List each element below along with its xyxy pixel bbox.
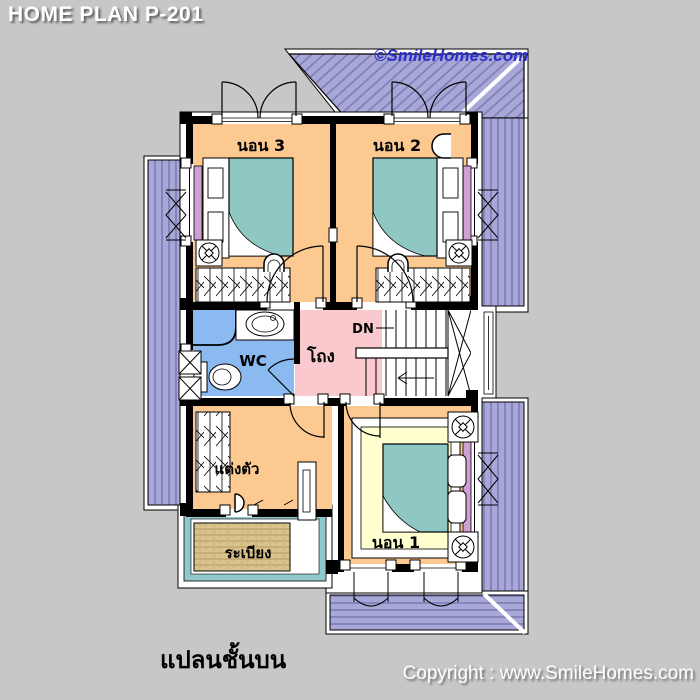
dresser: [298, 462, 316, 520]
ceiling-fan-icon: [196, 240, 222, 266]
closet: [376, 268, 470, 302]
window-sill: [463, 430, 471, 546]
lamp-arch-icon: [264, 254, 284, 272]
watermark-text: ©SmileHomes.com: [374, 46, 528, 66]
roof-bottom: [326, 591, 528, 634]
label-dressing: แต่งตัว: [215, 460, 260, 478]
window-sill: [194, 166, 202, 240]
label-balcony: ระเบียง: [225, 544, 272, 562]
window-sill: [463, 166, 471, 240]
label-hall: โถง: [306, 346, 335, 367]
furniture-bedroom-2: [373, 134, 472, 302]
furniture-bedroom-3: [194, 158, 293, 302]
closet: [196, 268, 290, 302]
roof-right-upper: [478, 118, 528, 312]
toilet-bowl: [209, 364, 241, 390]
page-title: HOME PLAN P-201: [8, 3, 203, 27]
wall-mirror-icon: [432, 134, 451, 158]
label-wc: WC: [239, 352, 267, 370]
pillow: [448, 455, 466, 487]
copyright-text: Copyright : www.SmileHomes.com: [403, 663, 694, 685]
label-stairs-dn: DN: [352, 322, 374, 337]
label-bedroom-1: นอน 1: [372, 533, 420, 552]
closet: [196, 412, 230, 492]
label-bedroom-2: นอน 2: [373, 136, 421, 155]
screenshot-canvas: นอน 3 นอน 2 WC โถง แต่งตัว ระเบียง นอน 1…: [0, 0, 700, 700]
label-bedroom-3: นอน 3: [237, 136, 285, 155]
pillow: [448, 491, 466, 523]
floor-plan: นอน 3 นอน 2 WC โถง แต่งตัว ระเบียง นอน 1…: [0, 0, 700, 700]
plan-caption: แปลนชั้นบน: [160, 640, 286, 679]
ceiling-fan-icon: [446, 240, 472, 266]
ceiling-fan-icon: [448, 412, 478, 442]
ceiling-fan-icon: [448, 532, 478, 562]
stair-rail: [356, 348, 448, 358]
